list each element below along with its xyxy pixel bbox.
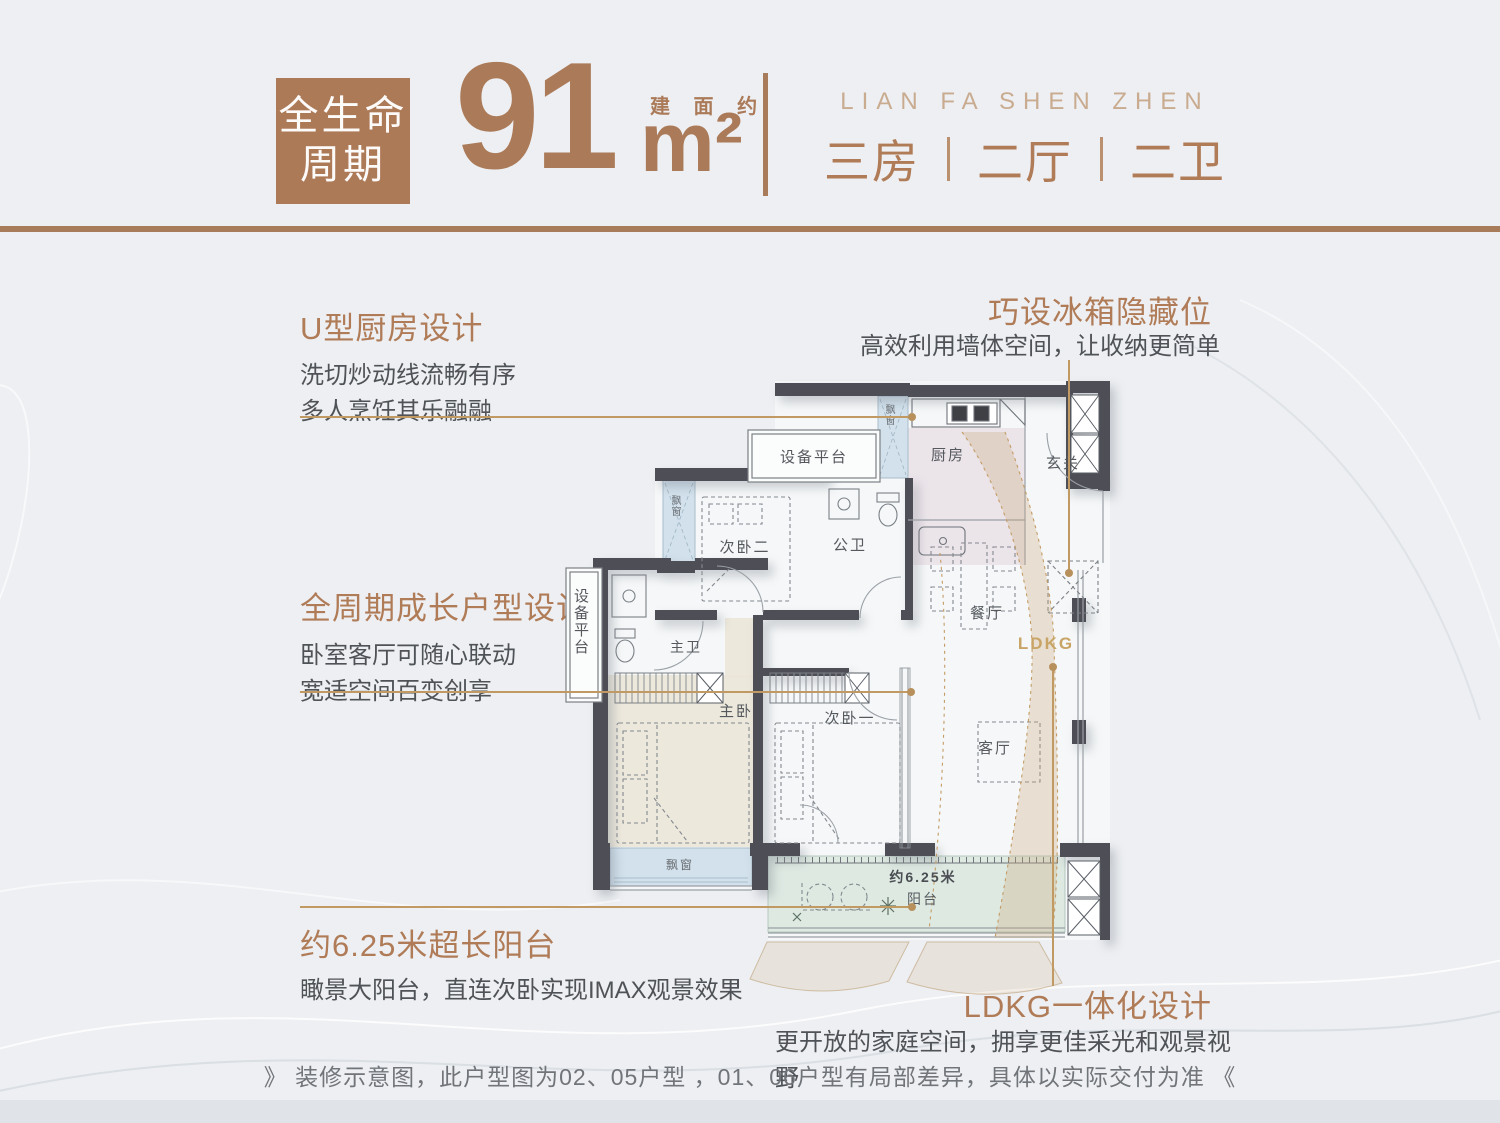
leader-line-growth (300, 691, 911, 693)
callout-kitchen-line1: 洗切炒动线流畅有序 (300, 358, 516, 394)
label-public-bath: 公卫 (820, 534, 880, 555)
layout-halls: 二厅 (977, 126, 1073, 192)
header-rule (0, 226, 1500, 232)
callout-kitchen-title: U型厨房设计 (300, 303, 516, 348)
brand-name: LIAN FA SHEN ZHEN (820, 88, 1230, 116)
label-master-bath: 主卫 (656, 637, 716, 657)
poster-root: 全生命 周期 91 建 面 约 m² LIAN FA SHEN ZHEN 三房 … (0, 0, 1500, 1123)
leader-dot-kitchen (908, 413, 916, 421)
label-bay-window-kitchen: 飘窗 (881, 404, 896, 460)
label-master-bedroom: 主卧 (706, 700, 766, 721)
callout-fridge-title: 巧设冰箱隐藏位 (860, 287, 1212, 332)
area-unit: m² (640, 100, 743, 184)
badge-line1: 全生命 (279, 92, 408, 141)
lifecycle-badge: 全生命 周期 (276, 78, 410, 204)
label-bay-window-bed2: 飘窗 (667, 495, 682, 551)
leader-line-ldkg (1052, 666, 1054, 986)
layout-rooms: 三房 (824, 126, 920, 192)
label-foyer: 玄关 (1033, 452, 1093, 473)
view-fans (750, 942, 1062, 994)
leader-line-kitchen (300, 416, 912, 418)
layout-separator (947, 137, 950, 181)
callout-growth-title: 全周期成长户型设计 (300, 583, 588, 628)
label-living: 客厅 (965, 737, 1025, 758)
leader-line-fridge (1068, 360, 1070, 572)
badge-line2: 周期 (300, 141, 386, 190)
header-vertical-divider (763, 73, 768, 196)
label-kitchen: 厨房 (918, 444, 978, 465)
disclaimer-text: 》 装修示意图，此户型图为02、05户型 ，01、06户型有局部差异，具体以实际… (0, 1058, 1500, 1092)
callout-fridge-body: 高效利用墙体空间，让收纳更简单 (840, 329, 1220, 365)
label-bay-window-master: 飘窗 (640, 856, 720, 873)
label-ldkg: LDKG (1000, 634, 1092, 654)
leader-dot-growth (907, 688, 915, 696)
leader-line-balcony (300, 906, 912, 908)
label-equipment-platform-left: 设备平台 (570, 588, 591, 698)
label-equipment-platform-top: 设备平台 (754, 446, 874, 467)
callout-kitchen-line2: 多人烹饪其乐融融 (300, 394, 516, 430)
label-bedroom1: 次卧一 (805, 707, 895, 728)
layout-baths: 二卫 (1130, 126, 1226, 192)
callout-growth-line1: 卧室客厅可随心联动 (300, 638, 588, 674)
label-dining: 餐厅 (957, 602, 1017, 623)
label-bedroom2: 次卧二 (700, 536, 790, 557)
label-balcony-length: 约6.25米 (863, 867, 983, 887)
leader-dot-balcony (908, 903, 916, 911)
layout-separator (1100, 137, 1103, 181)
area-number: 91 (455, 40, 614, 192)
leader-dot-ldkg (1049, 663, 1057, 671)
callout-kitchen-design: U型厨房设计 洗切炒动线流畅有序 多人烹饪其乐融融 (300, 303, 516, 430)
layout-summary: 三房 二厅 二卫 (820, 131, 1230, 187)
leader-dot-fridge (1065, 569, 1073, 577)
